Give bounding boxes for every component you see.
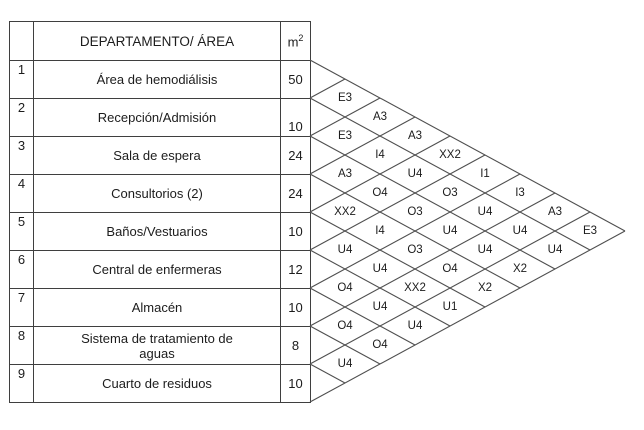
area-value: 10 bbox=[281, 213, 311, 251]
relationship-cell-7-8: O4 bbox=[337, 320, 352, 332]
department-name: Central de enfermeras bbox=[34, 251, 281, 289]
department-name: Consultorios (2) bbox=[34, 175, 281, 213]
header-area-cell: m2 bbox=[281, 22, 311, 61]
relationship-cell-2-8: U4 bbox=[513, 225, 528, 237]
relationship-cell-5-9: U1 bbox=[443, 301, 458, 313]
department-name: Cuarto de residuos bbox=[34, 365, 281, 403]
table-header-row: DEPARTAMENTO/ ÁREA m2 bbox=[10, 22, 311, 61]
relationship-cell-1-3: A3 bbox=[373, 111, 387, 123]
relationship-cell-4-8: O4 bbox=[442, 263, 457, 275]
department-name: Sala de espera bbox=[34, 137, 281, 175]
relationship-cell-6-8: U4 bbox=[373, 301, 388, 313]
area-unit-exponent: 2 bbox=[298, 33, 303, 43]
department-name: Almacén bbox=[34, 289, 281, 327]
relationship-cell-5-8: XX2 bbox=[404, 282, 426, 294]
relationship-cell-6-7: O4 bbox=[337, 282, 352, 294]
area-unit: m bbox=[288, 34, 299, 49]
row-number: 3 bbox=[10, 137, 34, 175]
row-number: 8 bbox=[10, 327, 34, 365]
row-number: 9 bbox=[10, 365, 34, 403]
relationship-cell-1-9: E3 bbox=[583, 225, 597, 237]
relationship-cell-8-9: U4 bbox=[338, 358, 353, 370]
relationship-cell-2-4: I4 bbox=[375, 149, 385, 161]
department-name: Recepción/Admisión bbox=[34, 99, 281, 137]
relationship-diagram: DEPARTAMENTO/ ÁREA m2 1 Área de hemodiál… bbox=[0, 0, 644, 430]
table-row: 7 Almacén 10 bbox=[10, 289, 311, 327]
department-name: Baños/Vestuarios bbox=[34, 213, 281, 251]
relationship-cell-5-6: U4 bbox=[338, 244, 353, 256]
table-row: 5 Baños/Vestuarios 10 bbox=[10, 213, 311, 251]
relationship-cell-3-8: U4 bbox=[478, 244, 493, 256]
relationship-cell-4-5: XX2 bbox=[334, 206, 356, 218]
table-row: 1 Área de hemodiálisis 50 bbox=[10, 61, 311, 99]
relationship-cell-3-4: A3 bbox=[338, 168, 352, 180]
relationship-cell-3-7: U4 bbox=[443, 225, 458, 237]
relationship-cell-4-6: I4 bbox=[375, 225, 385, 237]
relationship-cell-1-8: A3 bbox=[548, 206, 562, 218]
header-number-cell bbox=[10, 22, 34, 61]
header-department-cell: DEPARTAMENTO/ ÁREA bbox=[34, 22, 281, 61]
row-number: 4 bbox=[10, 175, 34, 213]
table-row: 3 Sala de espera 24 bbox=[10, 137, 311, 175]
table-row: 2 Recepción/Admisión 10 bbox=[10, 99, 311, 137]
table-row: 6 Central de enfermeras 12 bbox=[10, 251, 311, 289]
row-number: 1 bbox=[10, 61, 34, 99]
table-row: 4 Consultorios (2) 24 bbox=[10, 175, 311, 213]
relationship-cell-2-3: E3 bbox=[338, 130, 352, 142]
department-table: DEPARTAMENTO/ ÁREA m2 1 Área de hemodiál… bbox=[9, 21, 311, 403]
relationship-cell-3-5: O4 bbox=[372, 187, 387, 199]
row-number: 7 bbox=[10, 289, 34, 327]
row-number: 5 bbox=[10, 213, 34, 251]
relationship-cell-1-7: I3 bbox=[515, 187, 525, 199]
area-value: 10 bbox=[281, 99, 311, 137]
area-value: 10 bbox=[281, 289, 311, 327]
area-value: 12 bbox=[281, 251, 311, 289]
table-row: 8 Sistema de tratamiento de aguas 8 bbox=[10, 327, 311, 365]
relationship-cell-6-9: U4 bbox=[408, 320, 423, 332]
relationship-cell-2-6: O3 bbox=[442, 187, 457, 199]
area-value: 50 bbox=[281, 61, 311, 99]
area-value: 24 bbox=[281, 137, 311, 175]
relationship-cell-4-9: X2 bbox=[478, 282, 492, 294]
relationship-cell-1-2: E3 bbox=[338, 92, 352, 104]
relationship-cell-3-9: X2 bbox=[513, 263, 527, 275]
row-number: 2 bbox=[10, 99, 34, 137]
relationship-cell-7-9: O4 bbox=[372, 339, 387, 351]
relationship-cell-1-5: XX2 bbox=[439, 149, 461, 161]
relationship-cell-1-6: I1 bbox=[480, 168, 490, 180]
area-value: 24 bbox=[281, 175, 311, 213]
area-value: 10 bbox=[281, 365, 311, 403]
relationship-cell-2-7: U4 bbox=[478, 206, 493, 218]
relationship-cell-2-5: U4 bbox=[408, 168, 423, 180]
department-name: Área de hemodiálisis bbox=[34, 61, 281, 99]
relationship-cell-1-4: A3 bbox=[408, 130, 422, 142]
relationship-cell-2-9: U4 bbox=[548, 244, 563, 256]
relationship-cell-3-6: O3 bbox=[407, 206, 422, 218]
row-number: 6 bbox=[10, 251, 34, 289]
relationship-cell-4-7: O3 bbox=[407, 244, 422, 256]
department-name: Sistema de tratamiento de aguas bbox=[34, 327, 281, 365]
relationship-cell-5-7: U4 bbox=[373, 263, 388, 275]
area-value: 8 bbox=[281, 327, 311, 365]
table-row: 9 Cuarto de residuos 10 bbox=[10, 365, 311, 403]
